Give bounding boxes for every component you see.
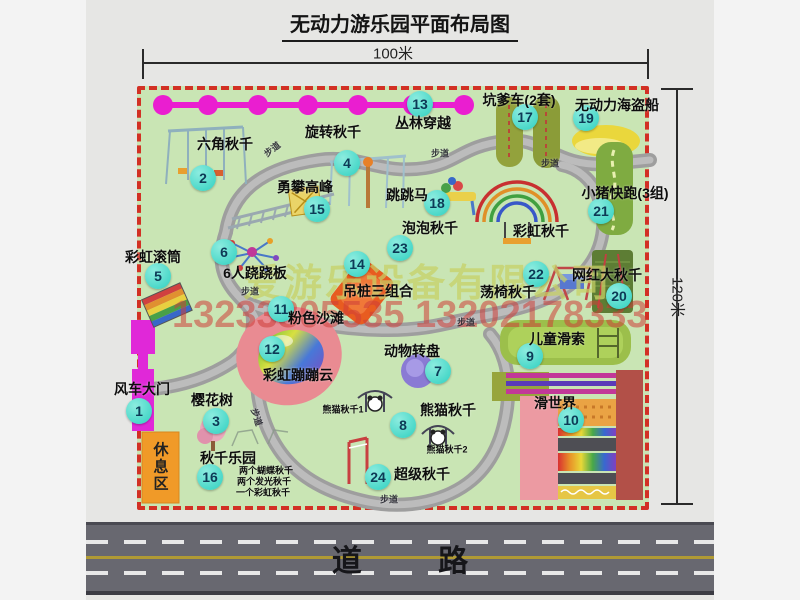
- attraction-label-7: 动物转盘: [384, 341, 440, 361]
- attraction-label-24: 超级秋千: [394, 464, 450, 484]
- panda-swing-1-label: 熊猫秋千1: [322, 403, 363, 416]
- attraction-marker-3: 3: [203, 408, 229, 434]
- attraction-label-4: 旋转秋千: [305, 122, 361, 142]
- page-title: 无动力游乐园平面布局图: [282, 8, 518, 42]
- attraction-marker-8: 8: [390, 412, 416, 438]
- footpath-label: 步道: [457, 316, 475, 329]
- road: 道 路: [86, 522, 714, 595]
- rest-area-label: 休息区: [150, 442, 171, 493]
- attraction-marker-6: 6: [211, 239, 237, 265]
- attraction-marker-4: 4: [334, 150, 360, 176]
- swing-park-line-3: 一个彩虹秋千: [236, 486, 290, 499]
- attraction-label-5: 彩虹滚筒: [125, 247, 181, 267]
- attraction-marker-14: 14: [344, 251, 370, 277]
- attraction-marker-2: 2: [190, 165, 216, 191]
- attraction-label-20: 网红大秋千: [572, 265, 642, 285]
- attraction-label-8: 熊猫秋千: [420, 400, 476, 420]
- attraction-label-1: 风车大门: [114, 379, 170, 399]
- attraction-marker-24: 24: [365, 464, 391, 490]
- attraction-label-13: 丛林穿越: [395, 113, 451, 133]
- footpath-label: 步道: [380, 493, 398, 506]
- attraction-label-14: 吊桩三组合: [343, 281, 413, 301]
- attraction-label-6: 6人跷跷板: [223, 263, 287, 283]
- attraction-label-3: 樱花树: [191, 390, 233, 410]
- footpath-label: 步道: [541, 157, 559, 170]
- attraction-label-19: 无动力海盗船: [575, 95, 659, 115]
- width-dimension-label: 100米: [373, 43, 413, 64]
- attraction-label-18: 跳跳马: [386, 185, 428, 205]
- attraction-label-23: 泡泡秋千: [402, 218, 458, 238]
- attraction-label-9: 儿童滑索: [529, 329, 585, 349]
- road-label: 道 路: [298, 536, 502, 580]
- attraction-label-2: 六角秋千: [197, 134, 253, 154]
- panda-swing-2-label: 熊猫秋千2: [426, 443, 467, 456]
- attraction-label-12: 彩虹蹦蹦云: [263, 365, 333, 385]
- rainbow-swing-label: 彩虹秋千: [513, 221, 569, 241]
- attraction-marker-1: 1: [126, 398, 152, 424]
- attraction-label-11: 粉色沙滩: [288, 308, 344, 328]
- footpath-label: 步道: [431, 147, 449, 160]
- attraction-label-22: 荡椅秋千: [480, 282, 536, 302]
- attraction-marker-20: 20: [606, 283, 632, 309]
- attraction-marker-23: 23: [387, 235, 413, 261]
- height-dimension-label: 120米: [668, 277, 689, 317]
- attraction-marker-15: 15: [304, 196, 330, 222]
- park-layout-map: 无动力游乐园平面布局图: [0, 0, 800, 600]
- attraction-label-17: 坑爹车(2套): [482, 90, 555, 110]
- attraction-marker-12: 12: [259, 336, 285, 362]
- attraction-label-21: 小猪快跑(3组): [581, 183, 668, 203]
- attraction-marker-7: 7: [425, 358, 451, 384]
- attraction-label-15: 勇攀高峰: [277, 177, 333, 197]
- footpath-label: 步道: [241, 285, 259, 298]
- attraction-label-10: 滑世界: [534, 393, 576, 413]
